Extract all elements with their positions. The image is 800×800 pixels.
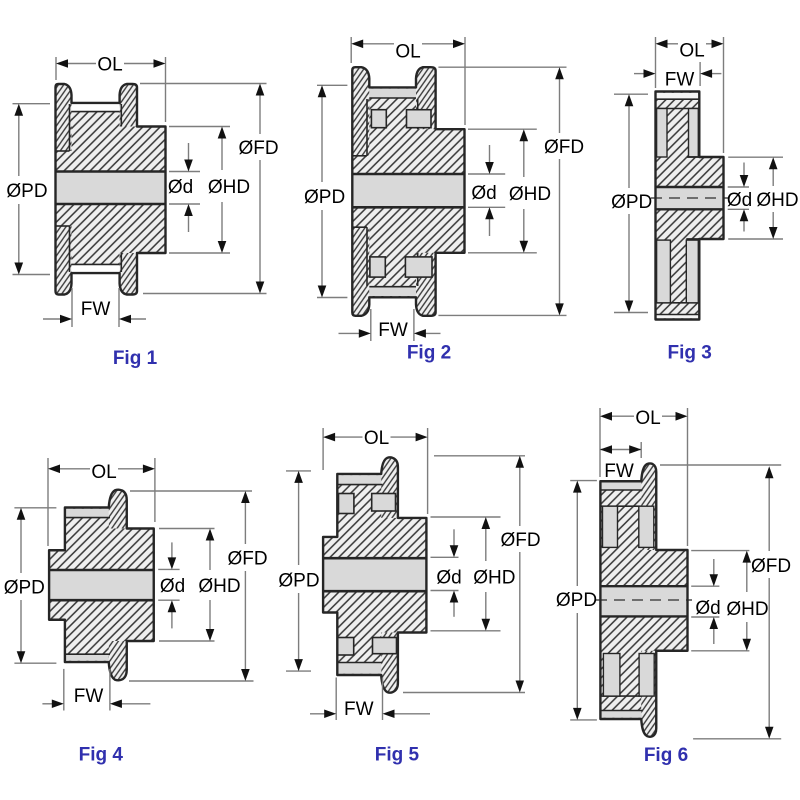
svg-text:OL: OL: [91, 462, 116, 483]
svg-text:Ød: Ød: [695, 598, 720, 619]
svg-text:ØFD: ØFD: [751, 556, 791, 577]
svg-text:Fig 1: Fig 1: [113, 348, 158, 369]
svg-text:ØPD: ØPD: [304, 187, 345, 208]
svg-text:Fig 5: Fig 5: [375, 745, 420, 766]
svg-text:ØPD: ØPD: [278, 571, 319, 592]
svg-text:OL: OL: [97, 55, 122, 76]
svg-text:Ød: Ød: [160, 576, 185, 597]
svg-text:FW: FW: [344, 699, 374, 720]
svg-text:ØPD: ØPD: [4, 578, 45, 599]
svg-text:Ød: Ød: [727, 190, 752, 211]
svg-text:ØFD: ØFD: [227, 549, 267, 570]
svg-text:ØHD: ØHD: [509, 184, 551, 205]
svg-text:OL: OL: [635, 408, 660, 429]
svg-text:Fig 6: Fig 6: [644, 745, 688, 766]
svg-text:Fig 4: Fig 4: [79, 745, 124, 766]
svg-text:Ød: Ød: [436, 568, 461, 589]
svg-text:ØPD: ØPD: [6, 181, 47, 202]
svg-text:OL: OL: [395, 42, 420, 63]
svg-text:Ød: Ød: [168, 177, 193, 198]
svg-text:FW: FW: [604, 461, 634, 482]
svg-text:ØFD: ØFD: [544, 137, 584, 158]
svg-text:ØHD: ØHD: [726, 599, 768, 620]
svg-text:FW: FW: [665, 69, 695, 90]
svg-text:ØPD: ØPD: [611, 192, 652, 213]
svg-text:ØHD: ØHD: [473, 568, 515, 589]
svg-text:OL: OL: [679, 41, 704, 62]
svg-text:ØHD: ØHD: [198, 576, 240, 597]
svg-text:Fig 3: Fig 3: [668, 343, 712, 364]
svg-text:ØPD: ØPD: [556, 590, 597, 611]
svg-text:ØFD: ØFD: [238, 138, 278, 159]
svg-text:FW: FW: [81, 299, 111, 320]
svg-text:ØFD: ØFD: [501, 530, 541, 551]
svg-text:FW: FW: [378, 320, 408, 341]
svg-text:ØHD: ØHD: [756, 190, 798, 211]
svg-text:OL: OL: [364, 428, 389, 449]
svg-text:ØHD: ØHD: [208, 177, 250, 198]
svg-text:Ød: Ød: [471, 183, 496, 204]
svg-text:FW: FW: [74, 686, 104, 707]
svg-text:Fig 2: Fig 2: [407, 343, 451, 364]
